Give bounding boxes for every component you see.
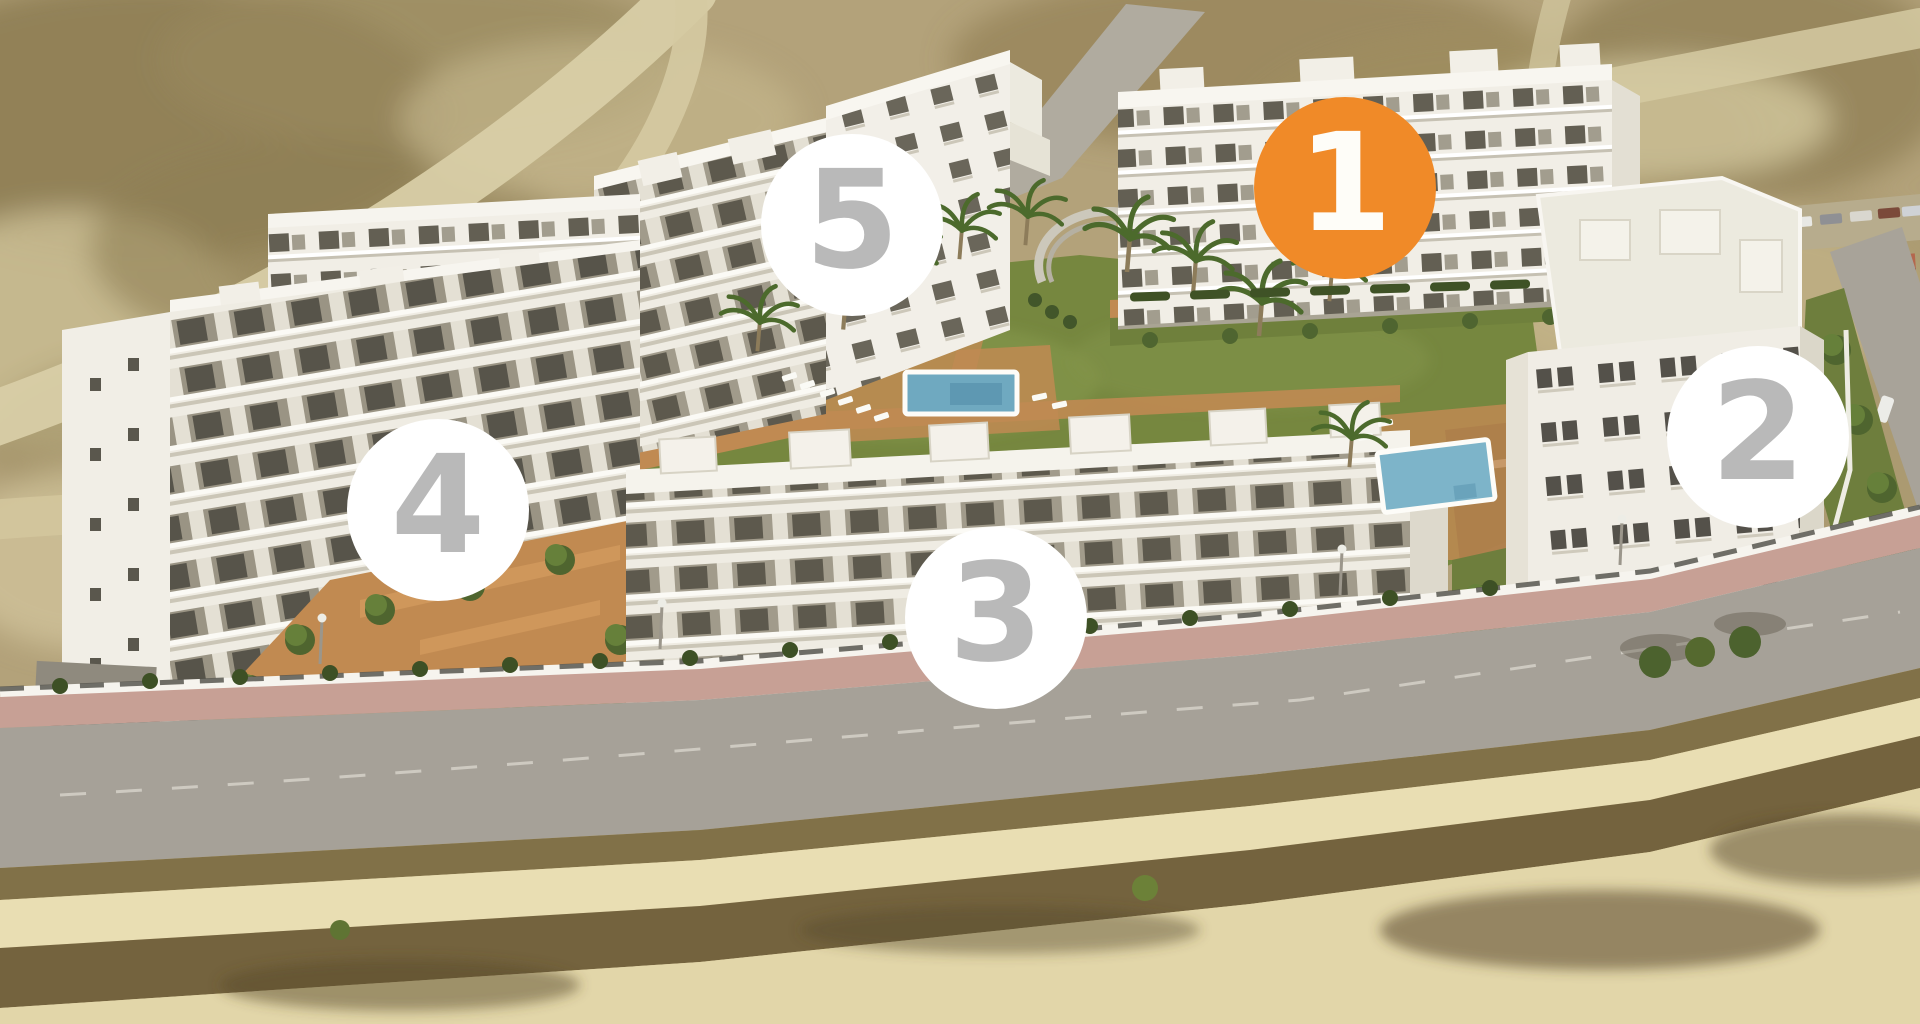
- building-markers: 1 2 3 4 5: [0, 0, 1920, 1024]
- building-marker-3[interactable]: 3: [905, 527, 1087, 709]
- building-marker-3-label: 3: [949, 546, 1044, 682]
- building-marker-4[interactable]: 4: [347, 419, 529, 601]
- site-plan: 1 2 3 4 5: [0, 0, 1920, 1024]
- building-marker-5-label: 5: [805, 153, 900, 289]
- building-marker-2-label: 2: [1711, 365, 1806, 501]
- building-marker-1[interactable]: 1: [1254, 97, 1436, 279]
- building-marker-5[interactable]: 5: [761, 134, 943, 316]
- building-marker-4-label: 4: [391, 438, 486, 574]
- building-marker-2[interactable]: 2: [1667, 346, 1849, 528]
- building-marker-1-label: 1: [1298, 116, 1393, 252]
